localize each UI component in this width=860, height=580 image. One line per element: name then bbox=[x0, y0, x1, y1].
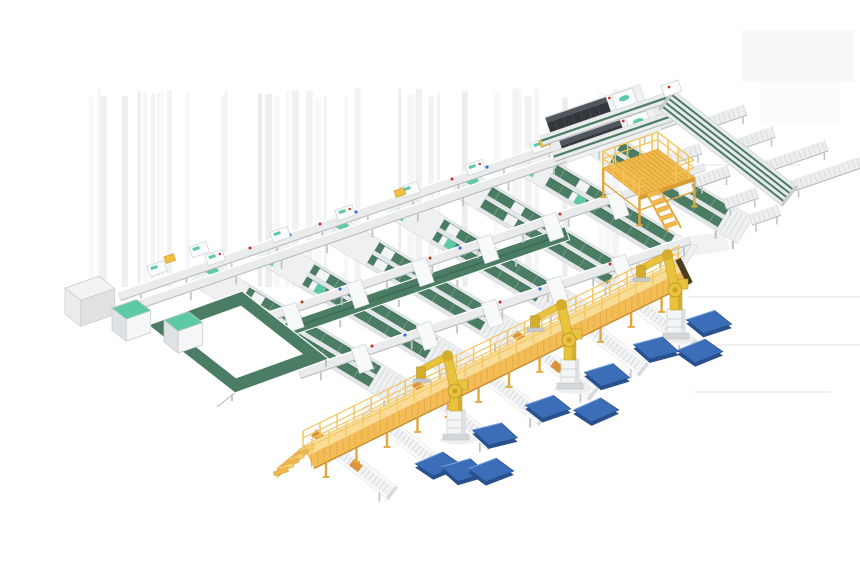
indicator-dot bbox=[499, 301, 502, 304]
spur-leg bbox=[630, 369, 632, 378]
bg-stripe bbox=[185, 93, 189, 287]
spur-leg bbox=[479, 443, 481, 452]
indicator-dot bbox=[673, 288, 678, 293]
tray-leg bbox=[701, 187, 703, 194]
bg-stripe bbox=[534, 89, 539, 287]
tray-leg bbox=[730, 209, 732, 216]
bg-stripe bbox=[161, 90, 163, 287]
robot-wrist bbox=[637, 266, 646, 278]
walkway-foot bbox=[536, 371, 543, 373]
rail-leg bbox=[592, 279, 594, 287]
bg-smear bbox=[742, 30, 854, 82]
walkway-leg bbox=[538, 358, 540, 371]
bg-stripe bbox=[101, 96, 107, 287]
robot-pedestal-shade bbox=[575, 359, 579, 383]
spur-leg bbox=[529, 419, 531, 428]
indicator-dot bbox=[608, 97, 611, 100]
indicator-dot bbox=[442, 350, 453, 361]
robot-baseplate bbox=[443, 434, 469, 440]
spur-leg bbox=[580, 394, 582, 403]
collector-leg bbox=[515, 260, 517, 267]
indicator-dot bbox=[538, 287, 541, 290]
robot-gripper bbox=[633, 278, 650, 282]
rail-leg bbox=[477, 250, 479, 258]
indicator-dot bbox=[403, 333, 406, 336]
indicator-dot bbox=[609, 263, 612, 266]
bg-stripe bbox=[137, 91, 141, 287]
robot-gripper bbox=[413, 379, 430, 383]
walkway-leg bbox=[325, 463, 327, 476]
lane-leg bbox=[732, 241, 734, 249]
bg-stripe bbox=[122, 96, 128, 287]
bg-stripe bbox=[98, 89, 101, 287]
robot-gripper bbox=[527, 328, 544, 332]
indicator-dot bbox=[662, 249, 673, 260]
tray-leg bbox=[726, 178, 728, 185]
indicator-dot bbox=[319, 223, 322, 226]
walkway-foot bbox=[414, 431, 421, 433]
robot-pedestal-shade bbox=[461, 410, 465, 434]
rail-leg bbox=[598, 151, 600, 159]
walkway-foot bbox=[323, 476, 330, 478]
tray-leg bbox=[755, 225, 757, 232]
mezz-foot bbox=[600, 196, 607, 198]
bg-stripe bbox=[143, 92, 148, 287]
factory-illustration bbox=[0, 0, 860, 580]
bg-stripe bbox=[525, 96, 532, 287]
walkway-foot bbox=[475, 401, 482, 403]
tray-leg bbox=[776, 218, 778, 225]
loop-leg bbox=[231, 394, 233, 401]
rail-leg bbox=[432, 266, 434, 274]
rail-leg bbox=[341, 297, 343, 305]
collector-leg bbox=[339, 320, 341, 327]
walkway-leg bbox=[630, 313, 632, 326]
indicator-dot bbox=[622, 120, 625, 123]
rail-leg bbox=[683, 248, 685, 256]
tray-leg bbox=[742, 117, 744, 124]
rail-leg bbox=[553, 167, 555, 175]
rail-leg bbox=[522, 235, 524, 243]
walkway-foot bbox=[384, 446, 391, 448]
rail-leg bbox=[281, 261, 283, 269]
walkway-leg bbox=[477, 388, 479, 401]
rail-leg bbox=[547, 294, 549, 302]
indicator-dot bbox=[453, 389, 458, 394]
indicator-dot bbox=[451, 178, 454, 181]
indicator-dot bbox=[458, 246, 461, 249]
tray-leg bbox=[754, 200, 756, 207]
indicator-dot bbox=[371, 345, 374, 348]
tray-leg bbox=[771, 139, 773, 146]
robot-wrist bbox=[531, 316, 540, 328]
walkway-leg bbox=[508, 373, 510, 386]
robot-pedestal-shade bbox=[681, 309, 685, 333]
rail-leg bbox=[411, 341, 413, 349]
rail-leg bbox=[456, 326, 458, 334]
rail-leg bbox=[190, 292, 192, 300]
rail-leg bbox=[372, 230, 374, 238]
tray-leg bbox=[798, 190, 800, 197]
bg-stripe bbox=[151, 94, 155, 287]
walkway-foot bbox=[353, 461, 360, 463]
tray-leg bbox=[697, 156, 699, 163]
loop-leg bbox=[325, 360, 327, 367]
rail-leg bbox=[326, 245, 328, 253]
spur-leg bbox=[379, 493, 381, 502]
indicator-dot bbox=[556, 299, 567, 310]
walkway-foot bbox=[628, 326, 635, 328]
bg-stripe bbox=[89, 97, 94, 287]
mezz-foot bbox=[636, 224, 643, 226]
indicator-dot bbox=[429, 257, 432, 260]
lane-leg bbox=[715, 231, 717, 239]
tray-leg bbox=[824, 153, 826, 160]
robot-baseplate bbox=[557, 383, 583, 389]
bg-stripe bbox=[344, 96, 348, 287]
rail-leg bbox=[508, 183, 510, 191]
indicator-dot bbox=[249, 247, 252, 250]
rail-leg bbox=[502, 310, 504, 318]
rail-leg bbox=[462, 198, 464, 206]
rail-leg bbox=[568, 219, 570, 227]
walkway-leg bbox=[599, 328, 601, 341]
indicator-dot bbox=[338, 287, 341, 290]
mezz-foot bbox=[691, 205, 698, 207]
bg-smear bbox=[760, 82, 840, 122]
collector-leg bbox=[398, 300, 400, 307]
walkway-leg bbox=[660, 298, 662, 311]
rail-leg bbox=[320, 373, 322, 381]
rail-leg bbox=[386, 282, 388, 290]
indicator-dot bbox=[485, 165, 488, 168]
indicator-dot bbox=[301, 301, 304, 304]
walkway-leg bbox=[355, 448, 357, 461]
rail-leg bbox=[235, 277, 237, 285]
bg-stripe bbox=[157, 93, 159, 287]
robot-wrist bbox=[417, 367, 426, 379]
bg-stripe bbox=[324, 96, 327, 287]
rail-leg bbox=[417, 214, 419, 222]
walkway-foot bbox=[658, 311, 665, 313]
indicator-dot bbox=[668, 86, 671, 89]
factory-scene bbox=[0, 0, 860, 580]
indicator-dot bbox=[559, 213, 562, 216]
walkway-foot bbox=[597, 341, 604, 343]
bg-stripe bbox=[315, 98, 322, 287]
walkway-foot bbox=[506, 386, 513, 388]
indicator-dot bbox=[567, 338, 572, 343]
walkway-leg bbox=[416, 418, 418, 431]
walkway-leg bbox=[386, 433, 388, 446]
robot-baseplate bbox=[663, 333, 689, 339]
collector-leg bbox=[456, 280, 458, 287]
